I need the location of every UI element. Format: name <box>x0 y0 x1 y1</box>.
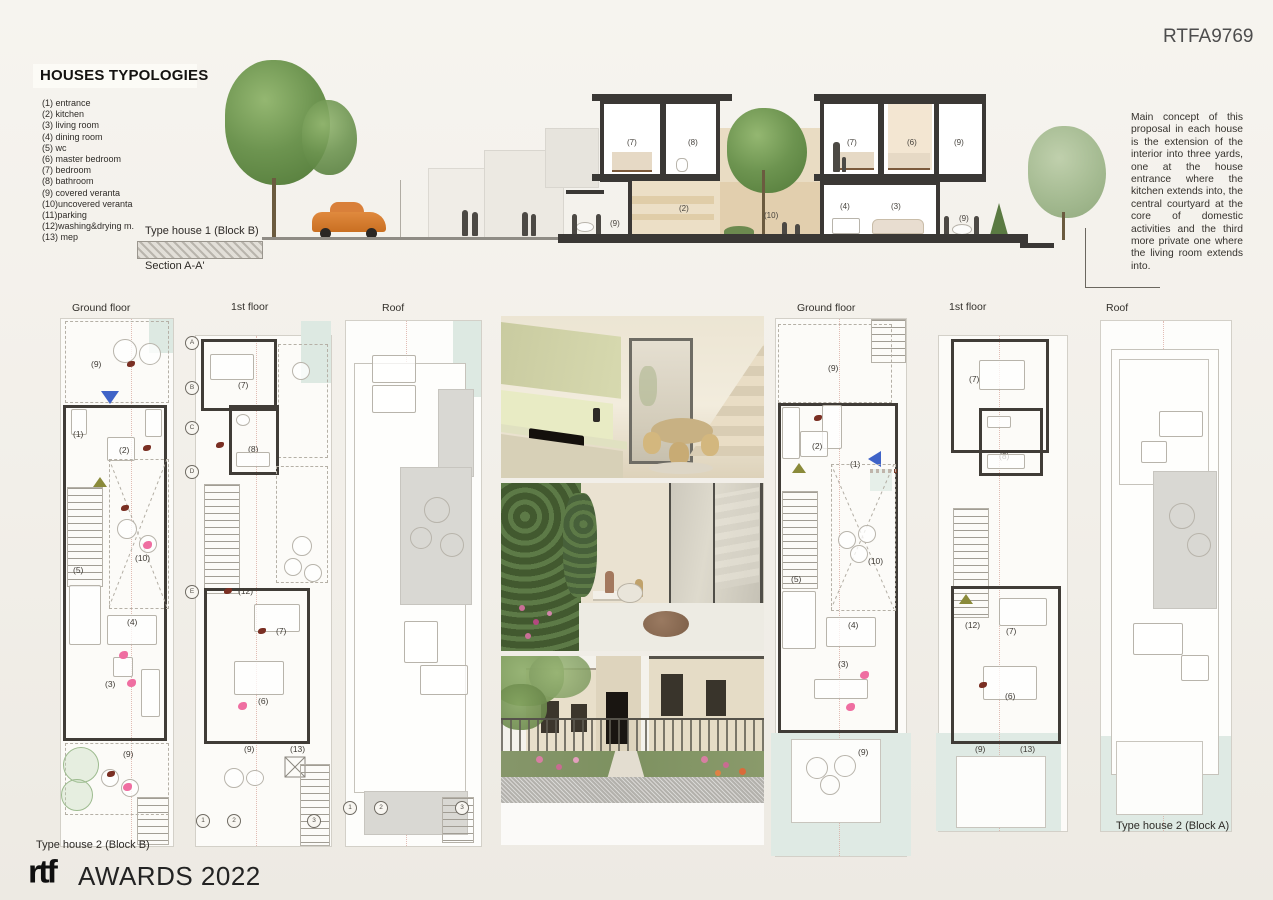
room-label: (10) <box>764 211 778 220</box>
room-label: (13) <box>1020 744 1035 754</box>
decor-mark <box>93 477 107 487</box>
kitchen-band <box>632 196 714 204</box>
flower <box>573 757 579 763</box>
tree-plan-icon <box>139 343 161 365</box>
section-wall <box>934 102 939 174</box>
room-label: (9) <box>610 219 620 228</box>
person-silhouette <box>944 216 949 236</box>
room-label: (12) <box>238 586 253 596</box>
window <box>661 674 683 716</box>
grid-bubble: D <box>185 465 199 479</box>
background-building <box>428 168 488 239</box>
grid-bubble: 2 <box>374 801 388 815</box>
grid-bubble: 3 <box>307 814 321 828</box>
plan-left-first: (7) (8) (12) (7) (6) (9) (13) <box>195 335 332 847</box>
room-label: (7) <box>847 138 857 147</box>
chair-icon <box>440 533 464 557</box>
room-label: (4) <box>848 620 858 630</box>
grid-bubble: E <box>185 585 199 599</box>
flower <box>547 611 552 616</box>
entrance-arrow-icon <box>101 391 119 404</box>
room-label: (9) <box>91 359 101 369</box>
person-silhouette <box>974 216 979 236</box>
person-silhouette <box>833 142 840 172</box>
room-label: (7) <box>238 380 248 390</box>
round-table <box>617 583 643 603</box>
legend-item: (4) dining room <box>42 132 134 143</box>
room-label: (1) <box>73 429 83 439</box>
coffee-maker <box>593 408 600 422</box>
bed-icon <box>210 354 254 380</box>
grid-bubble: 1 <box>196 814 210 828</box>
floor-slab <box>814 174 986 181</box>
chair-icon <box>292 362 310 380</box>
road-line <box>262 237 558 240</box>
room-label: (7) <box>969 374 979 384</box>
ground-hatch <box>137 241 263 259</box>
stairs <box>204 484 240 594</box>
room-label: (6) <box>1005 691 1015 701</box>
flower <box>715 770 721 776</box>
ground-step <box>1020 243 1054 248</box>
floor-slab <box>592 174 732 181</box>
bathtub-icon <box>236 452 270 467</box>
fence <box>501 718 764 751</box>
person-silhouette <box>531 214 536 236</box>
sofa-icon <box>1159 411 1203 437</box>
room-label: (9) <box>828 363 838 373</box>
chair <box>701 434 719 456</box>
room-label: (6) <box>258 696 268 706</box>
legend-item: (7) bedroom <box>42 165 134 176</box>
legend-item: (10)uncovered veranta <box>42 199 134 210</box>
legend-item: (13) mep <box>42 232 134 243</box>
legend-item: (12)washing&drying m. <box>42 221 134 232</box>
photo-street-render <box>501 656 764 845</box>
stairs <box>137 797 169 845</box>
grid-bubble: B <box>185 381 199 395</box>
room-label: (4) <box>840 202 850 211</box>
chair-icon <box>858 525 876 543</box>
flower <box>519 605 525 611</box>
sofa-icon <box>872 219 924 234</box>
chair-icon <box>292 536 312 556</box>
room-label: (9) <box>975 744 985 754</box>
grid-bubble: 1 <box>343 801 357 815</box>
decor-mark <box>860 671 869 679</box>
chair-icon <box>424 497 450 523</box>
table-icon <box>1187 533 1211 557</box>
grid-bubble: C <box>185 421 199 435</box>
plan-left-ground: (9) (1) (2) (10) (5) (4) (3) (9) <box>60 318 174 847</box>
rtf-logo: rtf <box>28 854 55 891</box>
person-silhouette <box>472 212 478 236</box>
dimension-line <box>1085 287 1160 288</box>
veranda-deck <box>956 756 1046 828</box>
window <box>706 680 726 716</box>
courtyard-tree-icon <box>727 108 807 193</box>
flower <box>556 764 562 770</box>
plan-right-ground: (9) (2) (1) (10) (5) (4) (3) (9) <box>775 318 907 857</box>
bathtub-icon <box>987 454 1025 469</box>
background-building <box>545 128 599 188</box>
courtyard-greenery <box>639 366 657 406</box>
room-label: (12) <box>965 620 980 630</box>
street-pole <box>400 180 401 237</box>
floor-label: 1st floor <box>949 301 986 313</box>
skylight-icon <box>372 385 416 413</box>
conifer-icon <box>990 203 1008 235</box>
room-label: (7) <box>1006 626 1016 636</box>
flower <box>525 633 531 639</box>
veranda-slab <box>566 190 604 194</box>
stairs <box>300 764 330 846</box>
decor-mark <box>119 651 128 659</box>
plan-right-roof <box>1100 320 1232 832</box>
room-label: (3) <box>891 202 901 211</box>
grid-bubble: 2 <box>227 814 241 828</box>
room-label: (9) <box>954 138 964 147</box>
roof-equipment <box>420 665 468 695</box>
concept-description: Main concept of this proposal in each ho… <box>1131 112 1243 273</box>
awards-text: AWARDS 2022 <box>78 861 261 892</box>
tree-plan-icon <box>63 747 99 783</box>
kitchen-band <box>632 214 714 220</box>
legend-item: (8) bathroom <box>42 176 134 187</box>
room-label: (9) <box>123 749 133 759</box>
roof-equipment <box>404 621 438 663</box>
room-label: (8) <box>688 138 698 147</box>
person-sitting <box>605 571 614 593</box>
gravel <box>501 777 764 803</box>
appliance-icon <box>145 409 162 437</box>
section-wall <box>878 102 884 174</box>
person-silhouette <box>522 212 528 236</box>
table-icon <box>284 558 302 576</box>
table-icon <box>410 527 432 549</box>
bed-icon <box>999 598 1047 626</box>
room-label: (7) <box>276 626 286 636</box>
decor-mark <box>216 442 224 448</box>
pouf <box>643 611 689 637</box>
decor-mark <box>846 703 855 711</box>
legend-item: (9) covered veranta <box>42 188 134 199</box>
flower <box>723 762 729 768</box>
roof-equipment <box>1181 655 1209 681</box>
rug <box>649 462 713 474</box>
tree-trunk <box>272 178 276 238</box>
roof-terrace <box>438 389 474 477</box>
type-label: Type house 2 (Block A) <box>1116 820 1229 832</box>
tree-trunk <box>1062 212 1065 240</box>
wc-fixture <box>69 585 101 645</box>
room-label: (5) <box>73 565 83 575</box>
decor-mark <box>792 463 806 473</box>
table-icon <box>850 545 868 563</box>
room-label: (9) <box>959 214 969 223</box>
room-label: (9) <box>244 744 254 754</box>
room-label: (10) <box>135 553 150 563</box>
armchair-icon <box>113 657 133 677</box>
photo-kitchen-render <box>501 316 764 478</box>
section-cut-label: Section A-A' <box>145 260 205 272</box>
flower <box>739 768 746 775</box>
decor-mark <box>238 702 247 710</box>
floor-label: Ground floor <box>72 302 130 314</box>
appliance-icon <box>782 407 800 459</box>
legend-item: (11)parking <box>42 210 134 221</box>
decor-mark <box>127 679 136 687</box>
legend-item: (6) master bedroom <box>42 154 134 165</box>
bed-icon <box>888 153 930 170</box>
floor-label: Roof <box>1106 302 1128 314</box>
dining-table-icon <box>832 218 860 234</box>
room-label: (5) <box>791 574 801 584</box>
section-house-label: Type house 1 (Block B) <box>145 225 259 237</box>
roof-equipment <box>1133 623 1183 655</box>
chair-icon <box>834 755 856 777</box>
table-icon <box>576 222 594 232</box>
decor-mark <box>143 541 152 549</box>
plan-left-roof <box>345 320 482 847</box>
chair-icon <box>224 768 244 788</box>
room-label: (13) <box>290 744 305 754</box>
bed-icon <box>979 360 1025 390</box>
room-label: (2) <box>119 445 129 455</box>
child-silhouette <box>842 157 846 172</box>
decor-mark <box>123 783 132 791</box>
wc-fixture <box>782 591 816 649</box>
grid-bubble: A <box>185 336 199 350</box>
veranda-deck <box>1116 741 1203 815</box>
person-silhouette <box>596 214 601 236</box>
type-label: Type house 2 (Block B) <box>36 839 150 851</box>
room-label: (2) <box>812 441 822 451</box>
bed-icon <box>612 152 652 172</box>
table-icon <box>820 775 840 795</box>
flower <box>536 756 543 763</box>
room-label: (6) <box>907 138 917 147</box>
flower <box>701 756 708 763</box>
ground-strip <box>558 234 1028 243</box>
tree-plan-icon <box>61 779 93 811</box>
grid-bubble: 3 <box>455 801 469 815</box>
tree-trunk <box>762 170 765 237</box>
sink-icon <box>236 414 250 426</box>
table-icon <box>117 519 137 539</box>
tree-icon <box>302 100 357 175</box>
legend-item: (1) entrance <box>42 98 134 109</box>
section-kitchen <box>628 181 722 236</box>
legend-item: (3) living room <box>42 120 134 131</box>
chair-icon <box>304 564 322 582</box>
floor-label: Roof <box>382 302 404 314</box>
room-label: (4) <box>127 617 137 627</box>
photo-courtyard-render <box>501 483 764 651</box>
section-wall <box>660 102 666 174</box>
toilet-icon <box>676 158 688 172</box>
plan-right-first: (7) (8) (12) (7) (6) (9) (13) <box>938 335 1068 832</box>
chair <box>643 432 661 454</box>
room-label: (3) <box>105 679 115 689</box>
room-label: (7) <box>627 138 637 147</box>
chair-icon <box>246 770 264 786</box>
person-silhouette <box>572 214 577 236</box>
board-code: RTFA9769 <box>1163 26 1253 48</box>
armchair-icon <box>1141 441 1167 463</box>
tree-icon <box>1028 126 1106 218</box>
tree-plan-icon <box>113 339 137 363</box>
legend-list: (1) entrance (2) kitchen (3) living room… <box>42 98 134 244</box>
person-silhouette <box>462 210 468 236</box>
photo-margin <box>501 803 764 845</box>
room-label: (10) <box>868 556 883 566</box>
stairs-reflection <box>715 487 759 590</box>
terrace-outline <box>278 344 328 458</box>
sofa-icon <box>141 669 160 717</box>
chair-icon <box>1169 503 1195 529</box>
bed-icon <box>234 661 284 695</box>
climbing-vine <box>563 493 597 597</box>
floor-label: Ground floor <box>797 302 855 314</box>
flower <box>533 619 539 625</box>
upper-cabinets <box>501 322 621 399</box>
floor-label: 1st floor <box>231 301 268 313</box>
page-title: HOUSES TYPOLOGIES <box>40 67 208 84</box>
room-label: (2) <box>679 204 689 213</box>
room-label: (3) <box>838 659 848 669</box>
fence-rail <box>501 718 764 720</box>
sink-icon <box>987 416 1011 428</box>
room-label: (9) <box>858 747 868 757</box>
sofa-icon <box>814 679 868 699</box>
legend-item: (5) wc <box>42 143 134 154</box>
legend-item: (2) kitchen <box>42 109 134 120</box>
dimension-line <box>1085 228 1086 288</box>
skylight-icon <box>372 355 416 383</box>
